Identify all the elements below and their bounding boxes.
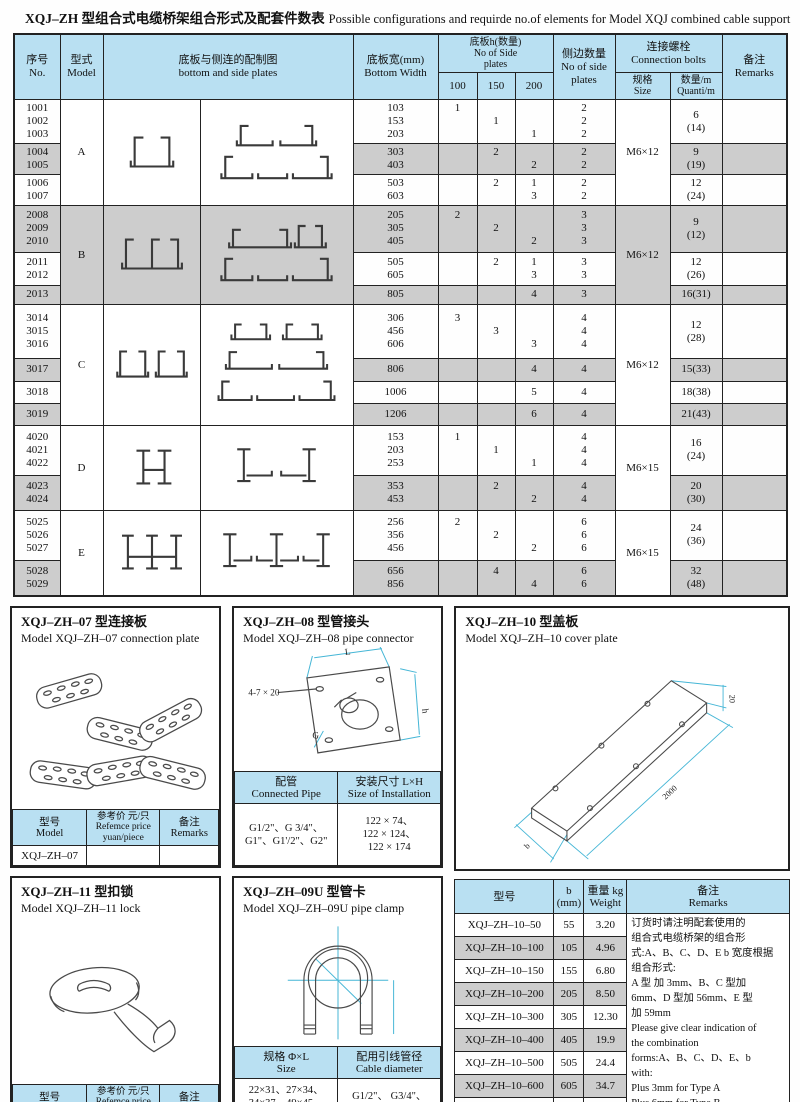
sides-cell: 3 <box>553 285 615 304</box>
width-cell: 806 <box>353 359 438 381</box>
bolt-qty-cell: 15(33) <box>670 359 722 381</box>
h100-cell <box>438 403 477 425</box>
bolt-size-cell: M6×12 <box>615 206 670 305</box>
model-type-cell: C <box>60 305 103 426</box>
h150-cell: 2 <box>477 144 515 175</box>
bolt-qty-cell: 6 (14) <box>670 100 722 144</box>
bolt-size-cell: M6×12 <box>615 305 670 426</box>
pipe-clamp-icon <box>238 921 438 1043</box>
section-zh08: XQJ–ZH–08 型管接头 Model XQJ–ZH–08 pipe conn… <box>232 606 443 868</box>
h200-cell: 4 <box>515 285 553 304</box>
sides-cell: 2 2 <box>553 175 615 206</box>
section-zh09u-title: XQJ–ZH–09U 型管卡 Model XQJ–ZH–09U pipe cla… <box>234 878 441 917</box>
zh11-price-table: 型号 Model 参考价 元/只 Refemce price yuan/piec… <box>12 1084 219 1102</box>
zh11-col-model: 型号 Model <box>13 1085 87 1102</box>
bolt-qty-cell: 21(43) <box>670 403 722 425</box>
width-cell: 205 305 405 <box>353 206 438 253</box>
model-nos-cell: 3018 <box>14 381 60 403</box>
h100-cell <box>438 359 477 381</box>
zh09u-size-cell: 22×31、27×34、 34×37、49×45、 61×50、76×57、 8… <box>235 1079 338 1102</box>
h200-cell: 3 <box>515 305 553 359</box>
h150-cell: 2 <box>477 475 515 510</box>
t10-b-cell: 55 <box>554 914 584 937</box>
h200-cell: 1 <box>515 426 553 476</box>
combinations-e-diagram <box>200 511 353 597</box>
model-type-cell: E <box>60 511 103 597</box>
width-cell: 1006 <box>353 381 438 403</box>
zh07-model-cell: XQJ–ZH–07 <box>13 846 87 866</box>
section-zh10: XQJ–ZH–10 型盖板 Model XQJ–ZH–10 cover plat… <box>454 606 790 871</box>
zh07-col-remarks: 备注 Remarks <box>160 810 219 846</box>
h200-cell: 6 <box>515 403 553 425</box>
connection-plates-icon <box>18 648 214 808</box>
bolt-qty-cell: 24 (36) <box>670 511 722 561</box>
col-header-remarks: 备注 Remarks <box>722 34 787 100</box>
bolt-size-cell: M6×15 <box>615 426 670 511</box>
h150-cell: 2 <box>477 206 515 253</box>
h200-cell: 1 3 <box>515 252 553 285</box>
col-header-sides: 侧边数量 No of side plates <box>553 34 615 100</box>
cover-plate-icon: 2000 20 b <box>458 652 786 864</box>
zh07-col-model: 型号 Model <box>13 810 87 846</box>
model-nos-cell: 4020 4021 4022 <box>14 426 60 476</box>
width-cell: 805 <box>353 285 438 304</box>
model-nos-cell: 1004 1005 <box>14 144 60 175</box>
profile-c-diagram <box>103 305 200 426</box>
zh07-remark-cell <box>160 846 219 866</box>
h150-cell: 1 <box>477 100 515 144</box>
zh08-col-size: 安装尺寸 L×H Size of Installation <box>338 772 441 804</box>
cover-plate-size-table: 型号 b (mm) 重量 kg Weight 备注 Remarks XQJ–ZH… <box>454 879 790 1102</box>
h100-cell <box>438 475 477 510</box>
connection-plates-diagram <box>12 647 219 809</box>
h150-cell: 1 <box>477 426 515 476</box>
h150-cell: 3 <box>477 305 515 359</box>
remark-cell <box>722 144 787 175</box>
width-cell: 353 453 <box>353 475 438 510</box>
t10-model-cell: XQJ–ZH–10–500 <box>455 1052 554 1075</box>
h200-cell: 4 <box>515 560 553 596</box>
zh07-col-price: 参考价 元/只 Refemce price yuan/piece <box>87 810 160 846</box>
section-zh10-title: XQJ–ZH–10 型盖板 Model XQJ–ZH–10 cover plat… <box>456 608 788 647</box>
zh10-thickness-label: 20 <box>728 695 737 703</box>
t10-weight-cell: 19.9 <box>584 1029 627 1052</box>
col-header-bolt-size: 规格 Size <box>615 73 670 100</box>
zh08-holes-label: 4-7 × 20 <box>248 687 279 697</box>
section-zh08-title-zh: XQJ–ZH–08 型管接头 <box>243 614 432 630</box>
zh07-price-cell <box>87 846 160 866</box>
t10-model-cell: XQJ–ZH–10–700 <box>455 1098 554 1102</box>
t10-model-cell: XQJ–ZH–10–400 <box>455 1029 554 1052</box>
remark-cell <box>722 511 787 561</box>
zh11-col-remarks: 备注 Remarks <box>160 1085 219 1102</box>
t10-col-remarks: 备注 Remarks <box>627 880 790 914</box>
page-title: XQJ–ZH 型组合式电缆桥架组合形式及配套件数表 Possible confi… <box>0 0 800 31</box>
sides-cell: 4 4 <box>553 475 615 510</box>
combinations-c-diagram <box>200 305 353 426</box>
profile-b-diagram <box>103 206 200 305</box>
h100-cell: 1 <box>438 100 477 144</box>
h100-cell <box>438 381 477 403</box>
bolt-qty-cell: 12 (26) <box>670 252 722 285</box>
h100-cell <box>438 560 477 596</box>
sides-cell: 4 4 4 <box>553 426 615 476</box>
width-cell: 103 153 203 <box>353 100 438 144</box>
t10-b-cell: 705 <box>554 1098 584 1102</box>
t10-remarks-cell: 订货时请注明配套使用的 组合式电缆桥架的组合形 式:A、B、C、D、E b 宽度… <box>627 914 790 1102</box>
t10-model-cell: XQJ–ZH–10–200 <box>455 983 554 1006</box>
pipe-clamp-diagram <box>234 917 441 1046</box>
model-nos-cell: 4023 4024 <box>14 475 60 510</box>
t10-model-cell: XQJ–ZH–10–100 <box>455 937 554 960</box>
remark-cell <box>722 305 787 359</box>
sides-cell: 3 3 3 <box>553 206 615 253</box>
bolt-qty-cell: 16(31) <box>670 285 722 304</box>
section-zh10-title-zh: XQJ–ZH–10 型盖板 <box>465 614 779 630</box>
channel-combo-d-icon <box>204 440 349 496</box>
bolt-qty-cell: 12 (24) <box>670 175 722 206</box>
channel-profile-c-icon <box>108 338 196 392</box>
width-cell: 306 456 606 <box>353 305 438 359</box>
page-title-en: Possible configurations and requirde no.… <box>329 12 791 26</box>
t10-col-model: 型号 <box>455 880 554 914</box>
h100-cell: 1 <box>438 426 477 476</box>
model-nos-cell: 2011 2012 <box>14 252 60 285</box>
profile-e-diagram <box>103 511 200 597</box>
bolt-size-cell: M6×12 <box>615 100 670 206</box>
left-column: XQJ–ZH–07 型连接板 Model XQJ–ZH–07 connectio… <box>10 606 221 1102</box>
channel-combo-b-icon <box>204 220 349 290</box>
section-zh08-title: XQJ–ZH–08 型管接头 Model XQJ–ZH–08 pipe conn… <box>234 608 441 647</box>
t10-b-cell: 205 <box>554 983 584 1006</box>
h100-cell <box>438 252 477 285</box>
right-column: XQJ–ZH–10 型盖板 Model XQJ–ZH–10 cover plat… <box>454 606 790 1102</box>
h150-cell: 4 <box>477 560 515 596</box>
col-header-bolts: 连接螺栓 Connection bolts <box>615 34 722 73</box>
bolt-qty-cell: 20 (30) <box>670 475 722 510</box>
model-nos-cell: 3019 <box>14 403 60 425</box>
sides-cell: 6 6 <box>553 560 615 596</box>
model-nos-cell: 1001 1002 1003 <box>14 100 60 144</box>
t10-weight-cell: 3.20 <box>584 914 627 937</box>
zh08-spec-table: 配管 Connected Pipe 安装尺寸 L×H Size of Insta… <box>234 771 441 866</box>
remark-cell <box>722 206 787 253</box>
model-nos-cell: 5025 5026 5027 <box>14 511 60 561</box>
col-header-h150: 150 <box>477 73 515 100</box>
combinations-d-diagram <box>200 426 353 511</box>
combinations-a-diagram <box>200 100 353 206</box>
page-title-zh: XQJ–ZH 型组合式电缆桥架组合形式及配套件数表 <box>25 11 325 26</box>
section-zh09u-title-zh: XQJ–ZH–09U 型管卡 <box>243 884 432 900</box>
h150-cell <box>477 285 515 304</box>
h100-cell <box>438 175 477 206</box>
section-zh11: XQJ–ZH–11 型扣锁 Model XQJ–ZH–11 lock <box>10 876 221 1102</box>
channel-combo-e-icon <box>204 525 349 581</box>
width-cell: 303 403 <box>353 144 438 175</box>
channel-profile-d-icon <box>108 441 196 495</box>
model-type-cell: A <box>60 100 103 206</box>
zh08-G-label: G <box>312 730 319 740</box>
t10-b-cell: 105 <box>554 937 584 960</box>
section-zh07-title-en: Model XQJ–ZH–07 connection plate <box>21 630 210 646</box>
t10-weight-cell: 6.80 <box>584 960 627 983</box>
bolt-qty-cell: 32 (48) <box>670 560 722 596</box>
col-header-no: 序号 No. <box>14 34 60 100</box>
t10-model-cell: XQJ–ZH–10–50 <box>455 914 554 937</box>
h150-cell: 2 <box>477 252 515 285</box>
combinations-b-diagram <box>200 206 353 305</box>
h200-cell: 4 <box>515 359 553 381</box>
bolt-size-cell: M6×15 <box>615 511 670 597</box>
profile-a-diagram <box>103 100 200 206</box>
h100-cell: 3 <box>438 305 477 359</box>
col-header-bolt-qty: 数量/m Quanti/m <box>670 73 722 100</box>
zh09u-cable-cell: G1/2"、 G3/4"、 G1"、 G1'/2"、 G2"、 G2'/2"、 … <box>338 1079 441 1102</box>
remark-cell <box>722 381 787 403</box>
sides-cell: 4 <box>553 381 615 403</box>
h150-cell: 2 <box>477 175 515 206</box>
t10-weight-cell: 4.96 <box>584 937 627 960</box>
section-zh08-title-en: Model XQJ–ZH–08 pipe connector <box>243 630 432 646</box>
channel-combo-a-icon <box>204 118 349 188</box>
sides-cell: 3 3 <box>553 252 615 285</box>
pipe-connector-diagram: 4-7 × 20 L h G <box>234 647 441 771</box>
middle-column: XQJ–ZH–08 型管接头 Model XQJ–ZH–08 pipe conn… <box>232 606 443 1102</box>
width-cell: 503 603 <box>353 175 438 206</box>
h150-cell <box>477 403 515 425</box>
t10-weight-cell: 43.5 <box>584 1098 627 1102</box>
t10-weight-cell: 24.4 <box>584 1052 627 1075</box>
remark-cell <box>722 359 787 381</box>
col-header-h100: 100 <box>438 73 477 100</box>
h150-cell <box>477 381 515 403</box>
remark-cell <box>722 252 787 285</box>
model-nos-cell: 1006 1007 <box>14 175 60 206</box>
sides-cell: 2 2 <box>553 144 615 175</box>
section-zh09u-title-en: Model XQJ–ZH–09U pipe clamp <box>243 900 432 916</box>
h200-cell: 2 <box>515 511 553 561</box>
bolt-qty-cell: 18(38) <box>670 381 722 403</box>
zh09u-col-cable: 配用引线管径 Cable diameter <box>338 1047 441 1079</box>
zh08-size-cell: 122 × 74、 122 × 124、 122 × 174 <box>338 804 441 866</box>
h200-cell: 1 3 <box>515 175 553 206</box>
h200-cell: 1 <box>515 100 553 144</box>
cover-plate-diagram: 2000 20 b <box>456 647 788 869</box>
sides-cell: 6 6 6 <box>553 511 615 561</box>
section-zh07: XQJ–ZH–07 型连接板 Model XQJ–ZH–07 connectio… <box>10 606 221 868</box>
section-zh11-title: XQJ–ZH–11 型扣锁 Model XQJ–ZH–11 lock <box>12 878 219 917</box>
h100-cell <box>438 285 477 304</box>
remark-cell <box>722 285 787 304</box>
remark-cell <box>722 100 787 144</box>
remark-cell <box>722 475 787 510</box>
section-zh11-title-zh: XQJ–ZH–11 型扣锁 <box>21 884 210 900</box>
t10-col-weight: 重量 kg Weight <box>584 880 627 914</box>
width-cell: 505 605 <box>353 252 438 285</box>
remark-cell <box>722 426 787 476</box>
col-header-model: 型式 Model <box>60 34 103 100</box>
lock-icon <box>18 926 214 1076</box>
zh09u-spec-table: 规格 Φ×L Size 配用引线管径 Cable diameter 22×31、… <box>234 1046 441 1102</box>
model-nos-cell: 3017 <box>14 359 60 381</box>
width-cell: 153 203 253 <box>353 426 438 476</box>
width-cell: 1206 <box>353 403 438 425</box>
h150-cell <box>477 359 515 381</box>
zh11-col-price: 参考价 元/只 Refemce price yuan/piece <box>87 1085 160 1102</box>
pipe-connector-icon: 4-7 × 20 L h G <box>238 647 438 771</box>
zh08-L-label: L <box>344 647 351 657</box>
col-header-plates: 底板与侧连的配制图 bottom and side plates <box>103 34 353 100</box>
t10-weight-cell: 34.7 <box>584 1075 627 1098</box>
profile-d-diagram <box>103 426 200 511</box>
channel-combo-c-icon <box>204 319 349 411</box>
t10-weight-cell: 12.30 <box>584 1006 627 1029</box>
sides-cell: 4 <box>553 403 615 425</box>
accessory-sections: XQJ–ZH–07 型连接板 Model XQJ–ZH–07 connectio… <box>10 606 790 1102</box>
zh10-length-label: 2000 <box>661 784 679 802</box>
bolt-qty-cell: 9 (19) <box>670 144 722 175</box>
t10-b-cell: 305 <box>554 1006 584 1029</box>
t10-col-b: b (mm) <box>554 880 584 914</box>
model-nos-cell: 3014 3015 3016 <box>14 305 60 359</box>
zh08-h-label: h <box>420 708 430 714</box>
channel-profile-b-icon <box>108 228 196 282</box>
model-nos-cell: 2013 <box>14 285 60 304</box>
t10-b-cell: 605 <box>554 1075 584 1098</box>
sides-cell: 4 4 4 <box>553 305 615 359</box>
channel-profile-a-icon <box>108 126 196 180</box>
lock-diagram <box>12 917 219 1084</box>
t10-model-cell: XQJ–ZH–10–150 <box>455 960 554 983</box>
section-zh11-title-en: Model XQJ–ZH–11 lock <box>21 900 210 916</box>
h200-cell: 2 <box>515 144 553 175</box>
sides-cell: 2 2 2 <box>553 100 615 144</box>
channel-profile-e-icon <box>108 526 196 580</box>
t10-b-cell: 405 <box>554 1029 584 1052</box>
zh08-pipe-cell: G1/2"、G 3/4"、 G1"、G1'/2"、G2" <box>235 804 338 866</box>
t10-model-cell: XQJ–ZH–10–600 <box>455 1075 554 1098</box>
zh07-price-table: 型号 Model 参考价 元/只 Refemce price yuan/piec… <box>12 809 219 866</box>
model-nos-cell: 5028 5029 <box>14 560 60 596</box>
section-zh10-title-en: Model XQJ–ZH–10 cover plate <box>465 630 779 646</box>
h100-cell: 2 <box>438 206 477 253</box>
sides-cell: 4 <box>553 359 615 381</box>
zh09u-col-size: 规格 Φ×L Size <box>235 1047 338 1079</box>
bolt-qty-cell: 9 (12) <box>670 206 722 253</box>
h200-cell: 2 <box>515 475 553 510</box>
h100-cell <box>438 144 477 175</box>
width-cell: 656 856 <box>353 560 438 596</box>
width-cell: 256 356 456 <box>353 511 438 561</box>
zh10-width-label: b <box>523 841 532 850</box>
catalog-page: XQJ–ZH 型组合式电缆桥架组合形式及配套件数表 Possible confi… <box>0 0 800 1102</box>
zh08-col-pipe: 配管 Connected Pipe <box>235 772 338 804</box>
h200-cell: 5 <box>515 381 553 403</box>
section-zh09u: XQJ–ZH–09U 型管卡 Model XQJ–ZH–09U pipe cla… <box>232 876 443 1102</box>
t10-b-cell: 155 <box>554 960 584 983</box>
t10-weight-cell: 8.50 <box>584 983 627 1006</box>
section-zh07-title: XQJ–ZH–07 型连接板 Model XQJ–ZH–07 connectio… <box>12 608 219 647</box>
main-configuration-table: 序号 No. 型式 Model 底板与侧连的配制图 bottom and sid… <box>13 33 788 597</box>
bolt-qty-cell: 12 (28) <box>670 305 722 359</box>
model-type-cell: B <box>60 206 103 305</box>
h150-cell: 2 <box>477 511 515 561</box>
model-type-cell: D <box>60 426 103 511</box>
t10-b-cell: 505 <box>554 1052 584 1075</box>
remark-cell <box>722 403 787 425</box>
col-header-width: 底板宽(mm) Bottom Width <box>353 34 438 100</box>
h200-cell: 2 <box>515 206 553 253</box>
t10-model-cell: XQJ–ZH–10–300 <box>455 1006 554 1029</box>
model-nos-cell: 2008 2009 2010 <box>14 206 60 253</box>
h100-cell: 2 <box>438 511 477 561</box>
bolt-qty-cell: 16 (24) <box>670 426 722 476</box>
section-zh07-title-zh: XQJ–ZH–07 型连接板 <box>21 614 210 630</box>
remark-cell <box>722 560 787 596</box>
col-header-h-plates: 底板h(数量) No of Side plates <box>438 34 553 73</box>
col-header-h200: 200 <box>515 73 553 100</box>
remark-cell <box>722 175 787 206</box>
